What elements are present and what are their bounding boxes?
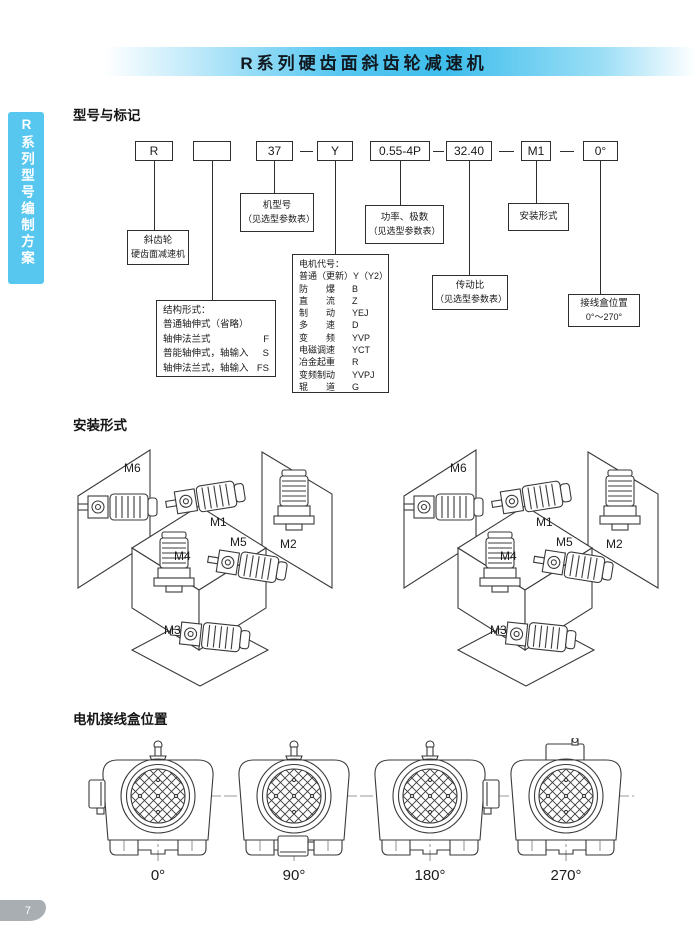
model-code-box-2 [193,141,231,161]
list-row: 冶金起重R [299,356,382,368]
mounting-label-m6: M6 [450,461,467,475]
catalog-page: R系列硬齿面斜齿轮减速机 R系列型号编制方案 型号与标记 安装形式 电机接线盒位… [0,0,700,950]
code-separator-dash [560,151,574,152]
list-row: 轴伸法兰式F [163,333,269,347]
row-code: YVPJ [352,369,375,381]
connector-line [154,161,155,230]
connector-line [469,161,470,275]
row-code: B [352,283,358,295]
model-code-box-5: 0.55-4P [370,141,430,161]
row-code: D [352,319,359,331]
mounting-label-m2: M2 [606,537,623,551]
section-heading-mounting: 安装形式 [73,414,127,434]
section-heading-terminal: 电机接线盒位置 [73,708,168,728]
list-row: 变 频YVP [299,332,382,344]
terminal-motor-figure-270°: 270° [496,738,636,884]
mounting-diagram-right: M6M1M2M4M5M3 [388,436,680,688]
list-row: 直 流Z [299,295,382,307]
row-name: 电磁调速 [299,344,352,356]
callout-motor-codes: 电机代号： 普通（更新）Y（Y2）防 爆B直 流Z制 动YEJ多 速D变 频YV… [292,254,389,393]
model-code-box-8: 0° [583,141,618,161]
connector-line [212,161,213,300]
code-separator-dash [300,151,313,152]
row-name: 变 频 [299,332,352,344]
connector-line [335,161,336,254]
row-name: 变频制动 [299,369,352,381]
model-code-box-4: Y [317,141,353,161]
mounting-diagram-left: M6M1M2M4M5M3 [62,436,354,688]
row-code: FS [257,362,269,376]
connector-line [400,161,401,205]
row-name: 防 爆 [299,283,352,295]
terminal-motor-figure-180°: 180° [360,738,500,884]
mounting-label-m5: M5 [230,535,247,549]
section-heading-model: 型号与标记 [73,104,141,124]
model-code-box-6: 32.40 [446,141,492,161]
page-number: 7 [25,905,31,917]
callout-terminal: 接线盒位置 0°～270° [568,294,640,327]
list-row: 防 爆B [299,283,382,295]
mounting-label-m3: M3 [164,623,181,637]
callout-model-no: 机型号 （见选型参数表） [240,193,314,232]
callout-mounting: 安装形式 [508,203,569,231]
model-code-box-3: 37 [256,141,293,161]
list-row: 制 动YEJ [299,307,382,319]
row-code: YCT [352,344,370,356]
terminal-motor-figure-0°: 0° [88,738,228,884]
terminal-angle-label: 0° [88,867,228,884]
page-header-band: R系列硬齿面斜齿轮减速机 [104,47,696,76]
row-name: 直 流 [299,295,352,307]
mounting-label-m4: M4 [174,549,191,563]
row-code: R [352,356,359,368]
list-row: 电磁调速YCT [299,344,382,356]
row-code: G [352,381,359,393]
row-code: Y（Y2） [353,270,388,282]
terminal-angle-label: 270° [496,867,636,884]
page-title: R系列硬齿面斜齿轮减速机 [240,49,487,74]
terminal-angle-label: 90° [224,867,364,884]
mounting-label-m4: M4 [500,549,517,563]
list-row: 多 速D [299,319,382,331]
code-separator-dash [499,151,514,152]
row-name: 普通轴伸式（省略） [163,318,249,332]
row-code: S [263,347,269,361]
mounting-label-m1: M1 [536,515,553,529]
row-code: F [263,333,269,347]
callout-reducer: 斜齿轮 硬齿面减速机 [127,230,189,265]
row-code: YVP [352,332,370,344]
row-name: 轴伸法兰式 [163,333,211,347]
row-name: 辊 道 [299,381,352,393]
mounting-label-m3: M3 [490,623,507,637]
callout-structure: 结构形式： 普通轴伸式（省略）轴伸法兰式F普能轴伸式，轴输入S轴伸法兰式，轴输入… [156,300,276,377]
mounting-label-m6: M6 [124,461,141,475]
model-code-box-1: R [135,141,173,161]
sidebar-tab: R系列型号编制方案 [8,112,44,284]
list-row: 普通（更新）Y（Y2） [299,270,382,282]
list-row: 辊 道G [299,381,382,393]
connector-line [274,161,275,193]
list-row: 普通轴伸式（省略） [163,318,269,332]
row-name: 轴伸法兰式，轴输入 [163,362,249,376]
callout-ratio: 传动比 （见选型参数表） [432,275,508,310]
mounting-label-m5: M5 [556,535,573,549]
terminal-angle-label: 180° [360,867,500,884]
list-row: 普能轴伸式，轴输入S [163,347,269,361]
model-code-box-7: M1 [521,141,551,161]
sidebar-tab-label: R系列型号编制方案 [16,117,36,267]
row-name: 制 动 [299,307,352,319]
callout-power: 功率、极数 （见选型参数表） [365,205,444,244]
row-name: 冶金起重 [299,356,352,368]
connector-line [536,161,537,203]
connector-line [600,161,601,294]
terminal-motor-figure-90°: 90° [224,738,364,884]
list-row: 变频制动YVPJ [299,369,382,381]
mounting-label-m2: M2 [280,537,297,551]
row-name: 普能轴伸式，轴输入 [163,347,249,361]
page-number-tab: 7 [0,900,46,921]
row-code: Z [352,295,358,307]
mounting-label-m1: M1 [210,515,227,529]
code-separator-dash [433,151,444,152]
list-row: 轴伸法兰式，轴输入FS [163,362,269,376]
row-code: YEJ [352,307,369,319]
row-name: 多 速 [299,319,352,331]
row-name: 普通（更新） [299,270,353,282]
